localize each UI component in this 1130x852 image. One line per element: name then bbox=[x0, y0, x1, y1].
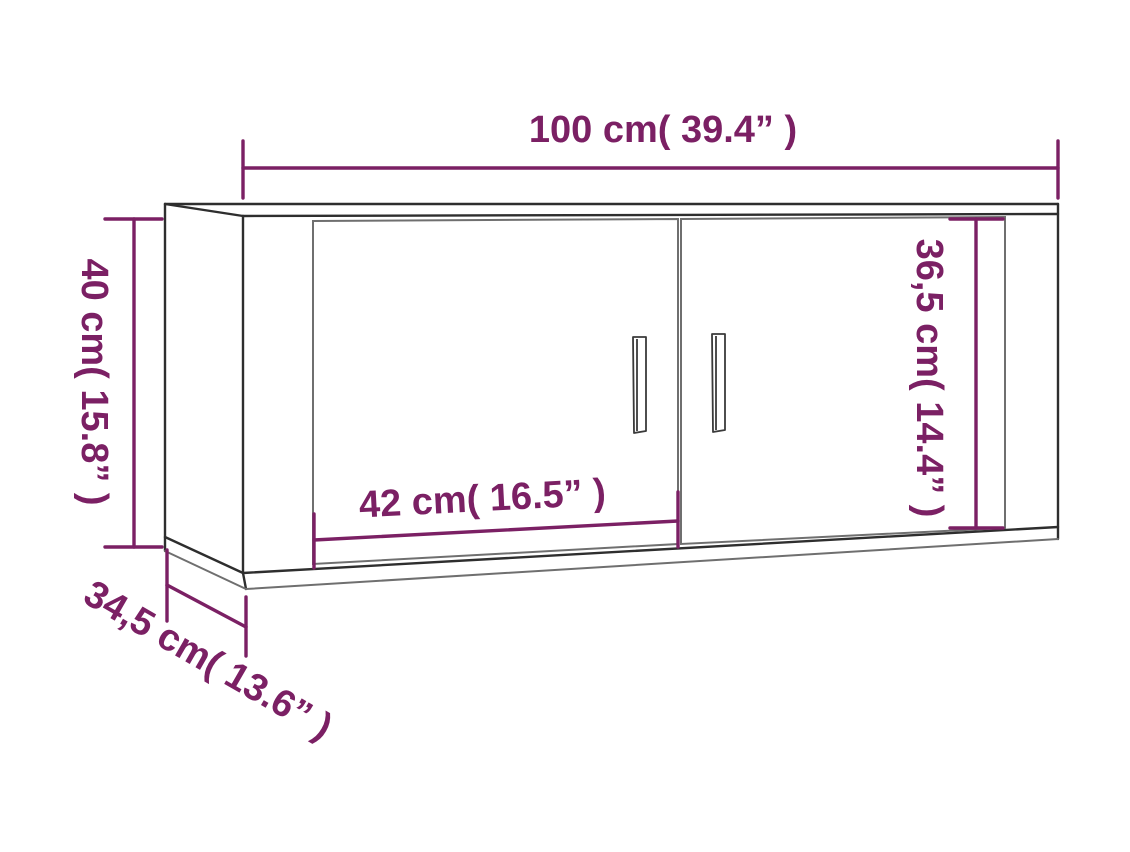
right-door bbox=[681, 217, 1005, 544]
edge-top-front bbox=[243, 214, 1058, 216]
cabinet-dimension-diagram: 100 cm( 39.4” ) 40 cm( 15.8” ) 34,5 cm( … bbox=[0, 0, 1130, 847]
right-door-handle bbox=[712, 334, 725, 432]
height-dimension-label: 40 cm( 15.8” ) bbox=[73, 258, 115, 505]
edge-side-top bbox=[165, 204, 243, 216]
width-dimension-label: 100 cm( 39.4” ) bbox=[529, 109, 797, 151]
edge-front-left-lower bbox=[243, 573, 246, 589]
edge-side-bottom bbox=[165, 537, 243, 573]
depth-dimension-label: 34,5 cm( 13.6” ) bbox=[77, 573, 339, 749]
door-height-dimension-label: 36,5 cm( 14.4” ) bbox=[908, 239, 950, 518]
left-door-handle bbox=[633, 337, 646, 433]
